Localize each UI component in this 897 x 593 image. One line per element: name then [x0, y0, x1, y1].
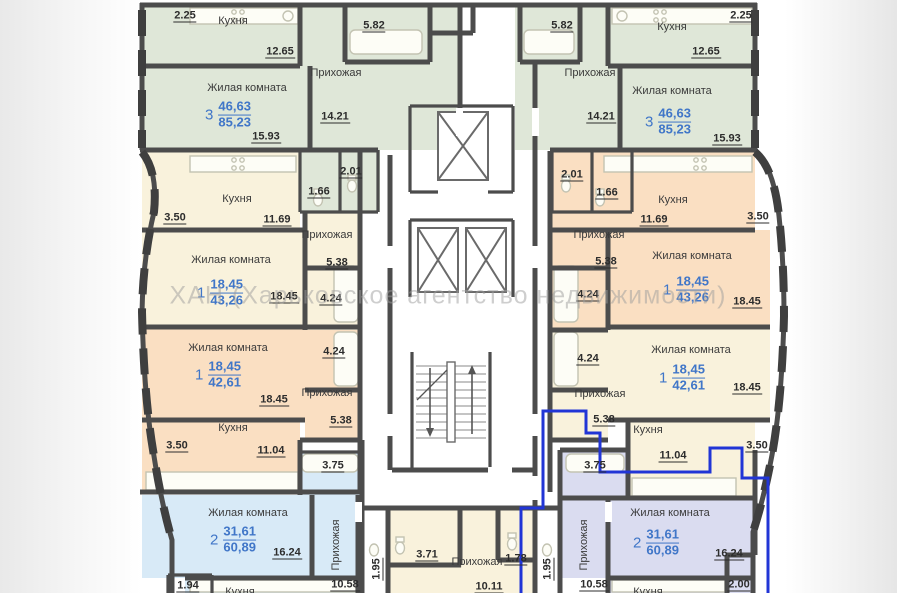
- dim-balcony-tr: 2.25: [729, 10, 752, 23]
- dim-kitchen-tl: 12.65: [265, 46, 295, 59]
- dim-hall-tr: 14.21: [586, 111, 616, 124]
- room-kitchen-tr: Кухня: [657, 21, 686, 33]
- dim-lobby-tl: 1.66: [307, 186, 330, 199]
- room-hall-bm: Прихожая: [452, 556, 503, 568]
- dim-bath-bm: 3.71: [415, 549, 438, 562]
- dim-shaft-bm: 1.95: [542, 557, 555, 580]
- dim-balcony-ml: 3.50: [163, 212, 186, 225]
- apartment-label-ll: 1 18,4542,61: [195, 360, 241, 391]
- apartment-label-tl: 3 46,6385,23: [205, 100, 251, 131]
- dim-hall-bl: 10.58: [330, 579, 360, 592]
- room-kitchen-mr: Кухня: [658, 194, 687, 206]
- room-kitchen-lr: Кухня: [633, 424, 662, 436]
- dim-bath-ll: 4.24: [322, 346, 345, 359]
- floor-plan: 2.25 Кухня 12.65 5.82 Прихожая Жилая ком…: [0, 0, 897, 593]
- dim-wc-tl: 2.01: [339, 166, 362, 179]
- dim-kitchen-lr: 11.04: [659, 450, 688, 463]
- room-living-lr: Жилая комната: [651, 344, 730, 356]
- dim-living-bl: 16.24: [272, 547, 302, 560]
- room-kitchen-ll: Кухня: [218, 422, 247, 434]
- dim-kitchen-mr: 11.69: [640, 214, 669, 227]
- dim-living-tr: 15.93: [712, 133, 742, 146]
- room-living-bl: Жилая комната: [208, 507, 287, 519]
- dim-kitchen-ml: 11.69: [263, 214, 292, 227]
- dim-hall-br: 10.58: [579, 579, 609, 592]
- dim-bath-lr: 4.24: [576, 353, 599, 366]
- room-hall-lr: Прихожая: [575, 388, 626, 400]
- dim-bath-br: 3.75: [583, 460, 606, 473]
- room-hall-ml: Прихожая: [302, 229, 353, 241]
- dim-hall-bm: 10.11: [475, 581, 504, 593]
- dim-balcony-ll: 3.50: [165, 440, 188, 453]
- room-kitchen-tl: Кухня: [218, 15, 247, 27]
- dim-lobby-tr: 1.66: [595, 187, 618, 200]
- staircase: [416, 362, 486, 442]
- room-kitchen-br: Кухня: [633, 586, 662, 593]
- room-hall-ll: Прихожая: [302, 387, 353, 399]
- dim-balcony-br: 2.00: [727, 579, 750, 592]
- dim-balcony-tl: 2.25: [173, 10, 196, 23]
- apartment-label-br: 2 31,6160,89: [633, 528, 679, 559]
- dim-bath-tr: 5.82: [550, 20, 573, 33]
- dim-shaft-bl: 1.95: [371, 557, 384, 580]
- dim-hall-lr: 5.38: [592, 414, 615, 427]
- apartment-label-bl: 2 31,6160,89: [210, 525, 256, 556]
- dim-balcony-mr: 3.50: [746, 211, 769, 224]
- room-living-mr: Жилая комната: [652, 250, 731, 262]
- dim-living-ll: 18.45: [259, 394, 289, 407]
- room-living-tr: Жилая комната: [632, 85, 711, 97]
- dim-balcony-lr: 3.50: [745, 440, 768, 453]
- dim-hall-ml: 5.38: [325, 257, 348, 270]
- dim-hall-mr: 5.38: [594, 256, 617, 269]
- room-kitchen-bl: Кухня: [225, 586, 254, 593]
- dim-balcony-bl: 1.94: [176, 580, 199, 593]
- apartment-label-lr: 1 18,4542,61: [659, 363, 705, 394]
- dim-kitchen-tr: 12.65: [691, 46, 721, 59]
- room-hall-mr: Прихожая: [574, 229, 625, 241]
- dim-living-lr: 18.45: [732, 382, 762, 395]
- room-hall-bl: Прихожая: [330, 520, 342, 571]
- room-hall-tr: Прихожая: [565, 67, 616, 79]
- dim-bath-bl: 3.75: [321, 460, 344, 473]
- room-hall-tl: Прихожая: [311, 67, 362, 79]
- dim-kitchen-ll: 11.04: [257, 445, 286, 458]
- dim-living-mr: 18.45: [732, 296, 762, 309]
- dim-hall-ll: 5.38: [329, 415, 352, 428]
- room-living-br: Жилая комната: [630, 507, 709, 519]
- apartment-label-tr: 3 46,6385,23: [645, 107, 691, 138]
- dim-living-br: 16.24: [714, 548, 744, 561]
- room-living-tl: Жилая комната: [207, 82, 286, 94]
- room-kitchen-ml: Кухня: [222, 193, 251, 205]
- dim-living-tl: 15.93: [251, 131, 281, 144]
- dim-hall-tl: 14.21: [320, 111, 350, 124]
- dim-wc-bm: 1.78: [504, 553, 527, 566]
- room-living-ml: Жилая комната: [191, 254, 270, 266]
- room-living-ll: Жилая комната: [188, 342, 267, 354]
- dim-wc-tr: 2.01: [560, 169, 583, 182]
- agency-watermark: ХАН (Харьковское агентство недвижимости): [170, 282, 727, 311]
- room-hall-br: Прихожая: [578, 520, 590, 571]
- dim-bath-tl: 5.82: [362, 20, 385, 33]
